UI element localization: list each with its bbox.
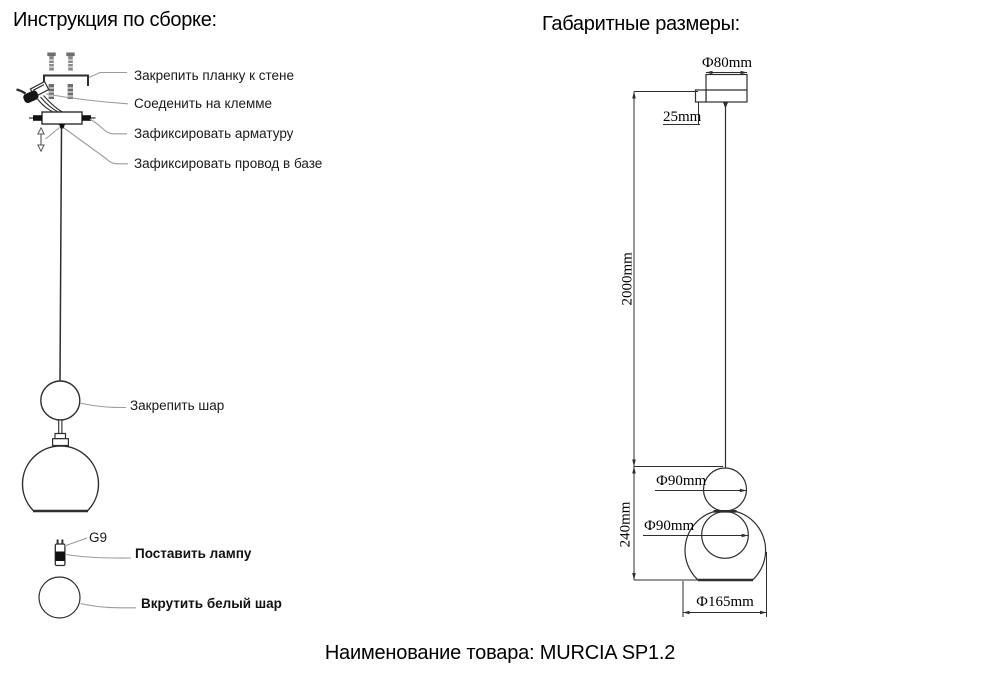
plug-cable-icon (17, 90, 26, 94)
dim-inner-ball-diameter: Ф90mm (644, 519, 694, 534)
label-fix-ball: Закрепить шар (130, 399, 224, 413)
white-ball (39, 577, 80, 618)
dimension-lines (632, 71, 766, 617)
mounting-bar (42, 112, 82, 124)
canopy-drawing (706, 75, 747, 103)
g9-bulb-icon (55, 540, 65, 566)
pendant-wire (60, 129, 62, 382)
dim-shade-diameter: Ф165mm (685, 595, 765, 610)
instruction-sheet: Инструкция по сборке: Габаритные размеры… (0, 0, 1000, 690)
top-ball (41, 381, 80, 420)
dim-canopy-offset: 25mm (663, 110, 701, 125)
assembly-leader-lines (46, 73, 137, 608)
product-name: Наименование товара: MURCIA SP1.2 (0, 642, 1000, 665)
cord-grip-icon (59, 124, 65, 129)
label-install-lamp: Поставить лампу (135, 547, 251, 561)
label-socket-type: G9 (89, 531, 107, 545)
assembly-title: Инструкция по сборке: (13, 10, 217, 30)
dimensions-title: Габаритные размеры: (542, 14, 740, 34)
label-attach-bar: Закрепить планку к стене (134, 69, 294, 83)
dimension-diagram (682, 75, 770, 595)
mounting-screws-icon (47, 53, 74, 71)
height-adjust-arrow-icon (38, 128, 44, 151)
ball-stem (59, 420, 62, 434)
label-fix-fixture: Зафиксировать арматуру (134, 127, 293, 141)
dim-top-ball-diameter: Ф90mm (656, 474, 706, 489)
dim-cord-length: 2000mm (621, 254, 636, 306)
dim-fixture-height: 240mm (619, 502, 634, 548)
label-screw-white-ball: Вкрутить белый шар (141, 597, 282, 611)
label-connect-terminal: Соеденить на клемме (134, 97, 272, 111)
shade-cap (53, 434, 69, 446)
label-fix-wire-base: Зафиксировать провод в базе (134, 157, 322, 171)
dim-canopy-diameter: Ф80mm (687, 56, 767, 71)
shade-outline-drawing (685, 510, 766, 591)
